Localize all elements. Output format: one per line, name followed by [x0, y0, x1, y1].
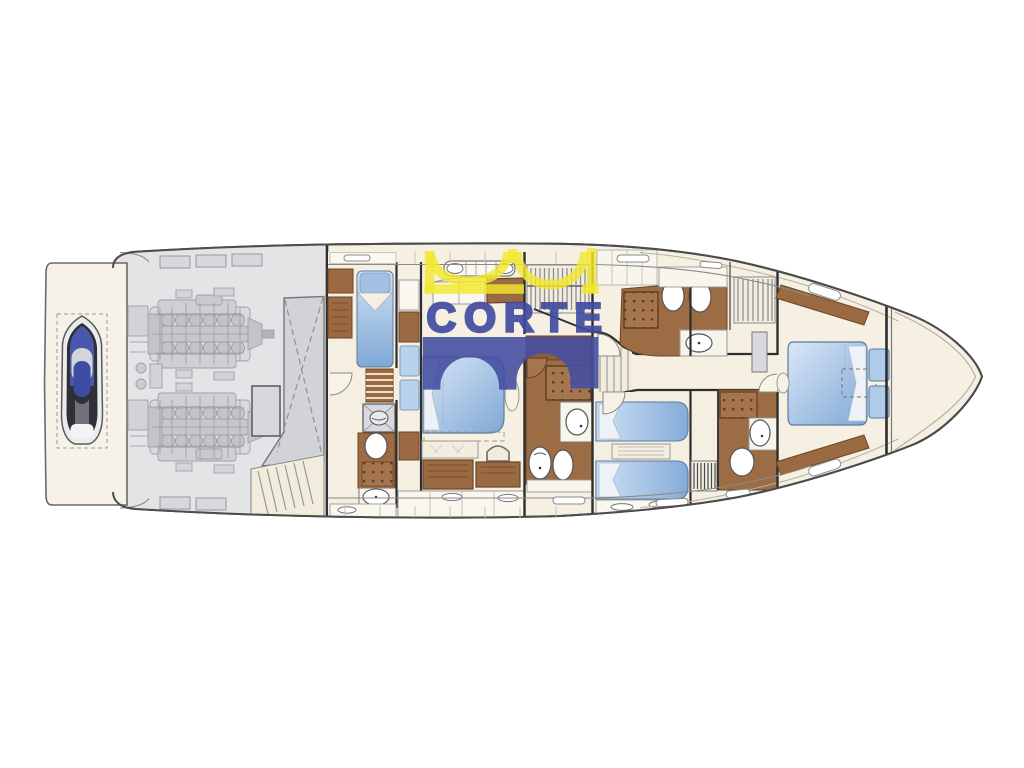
svg-text:CORTE: CORTE	[427, 295, 611, 341]
